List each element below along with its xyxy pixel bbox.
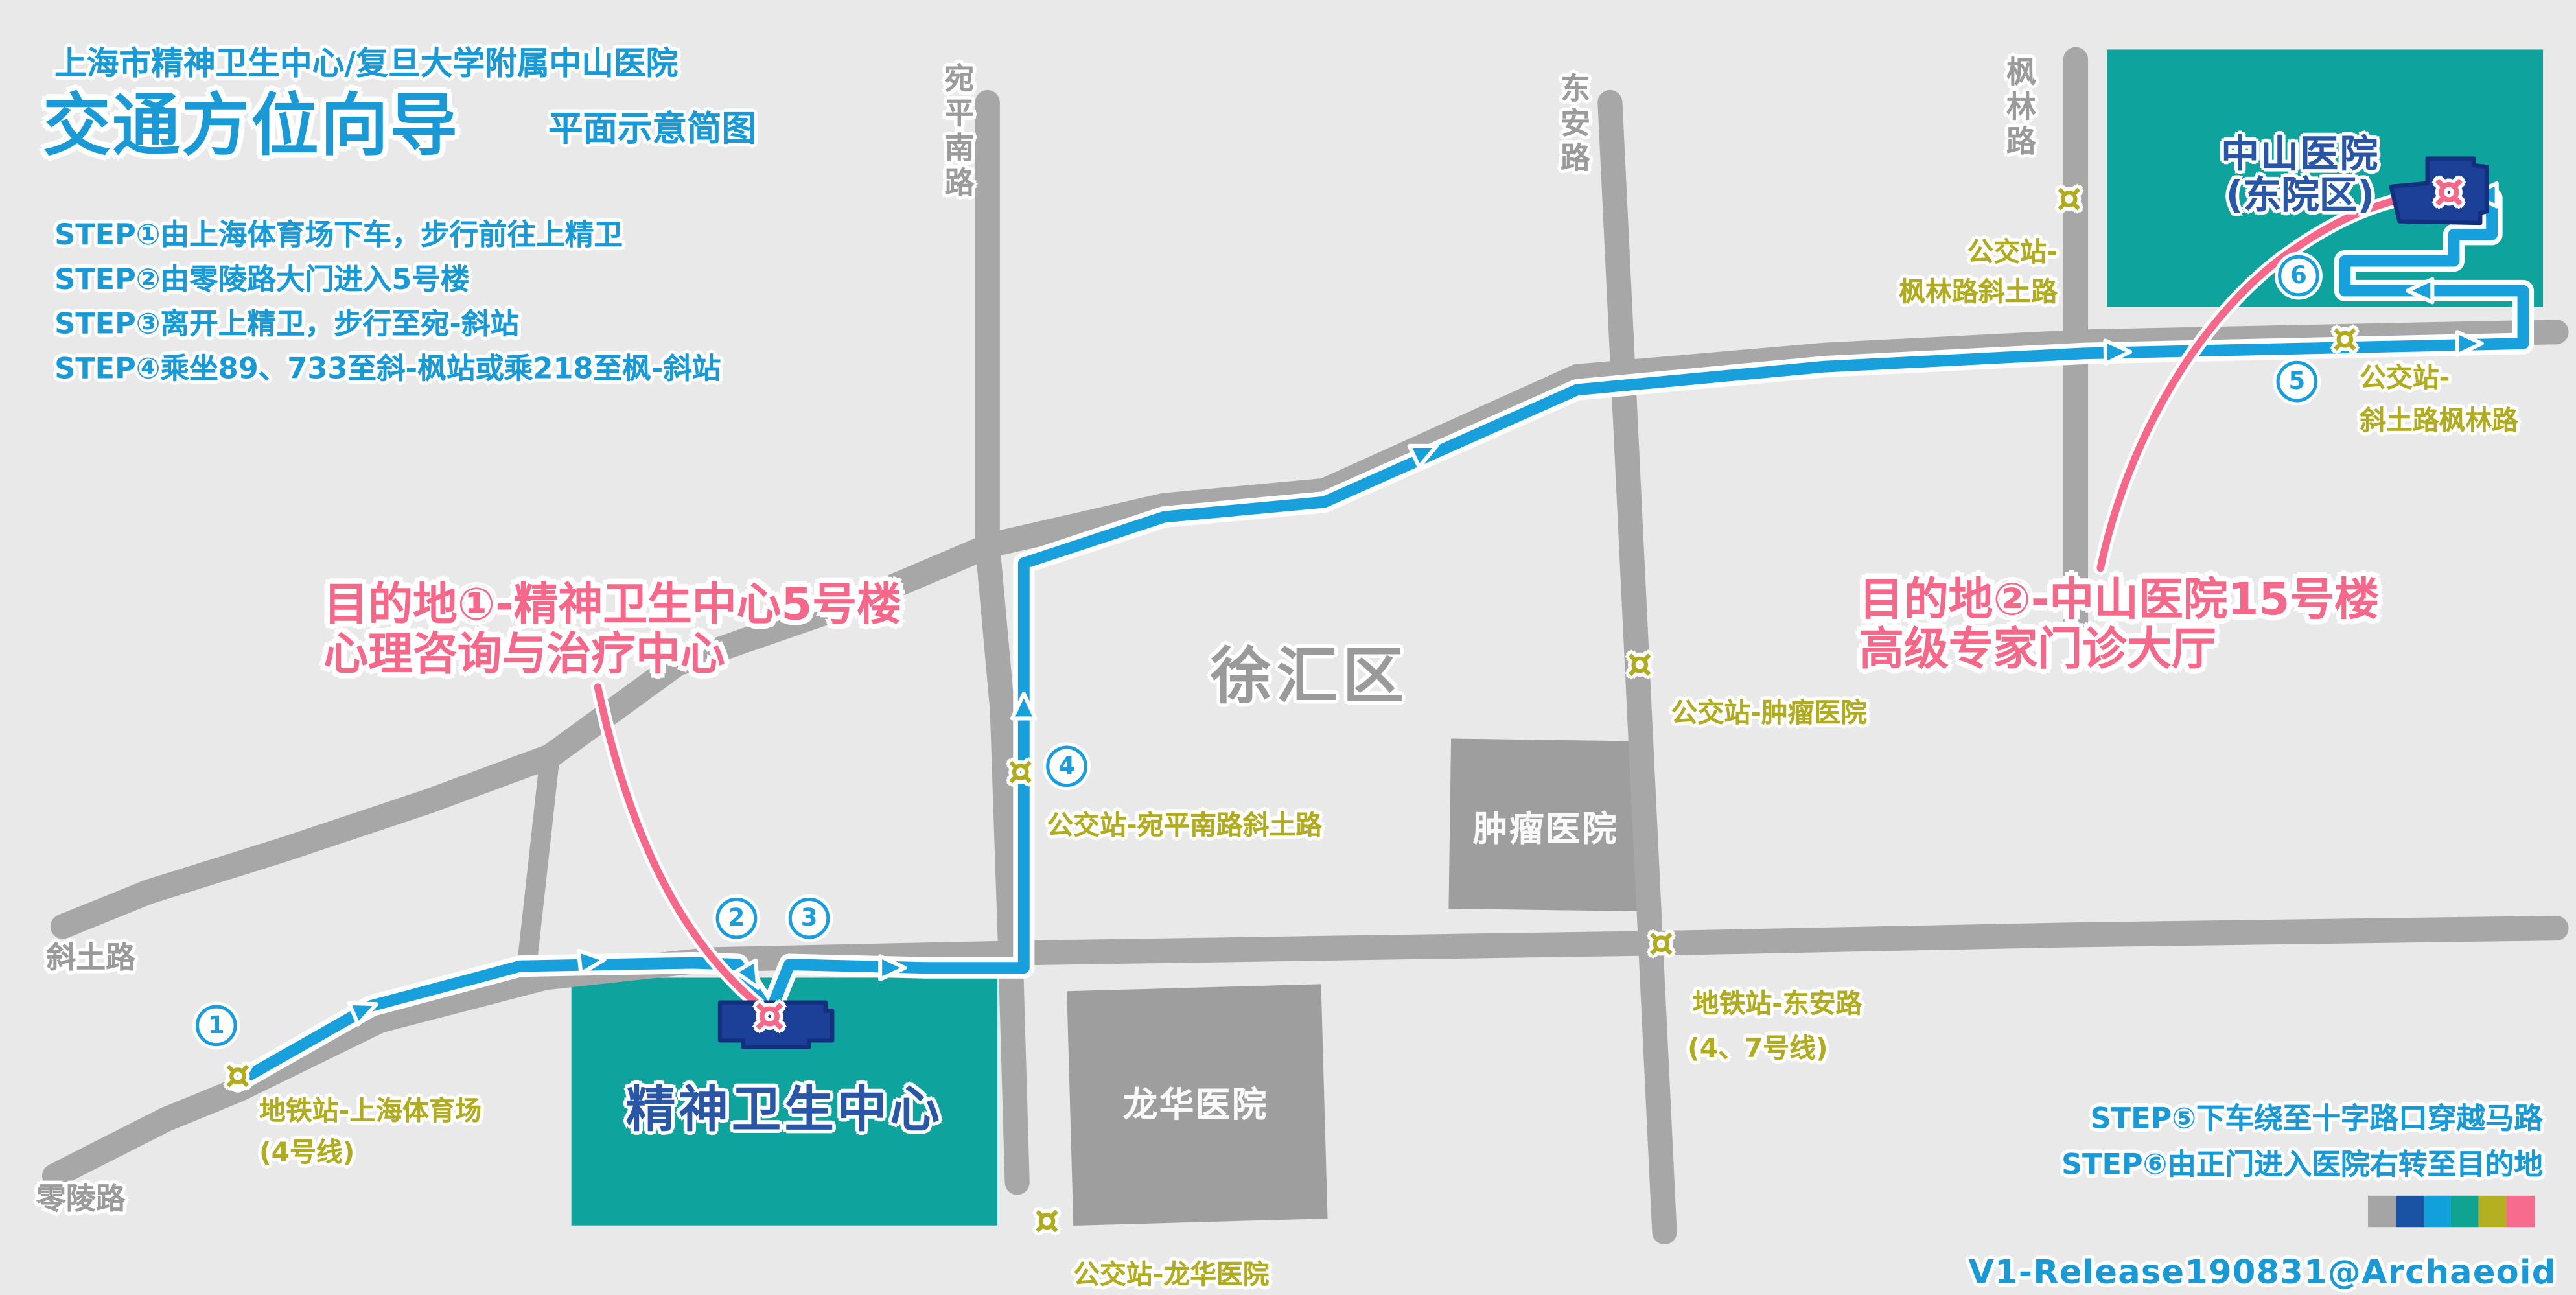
road-label-fenglin: 枫林路	[1997, 56, 2039, 161]
color-legend	[2368, 1196, 2535, 1227]
entrance-no15-icon: ¤	[2433, 167, 2464, 215]
metro-stadium-label-line2: (4号线)	[259, 1130, 354, 1169]
metro-dongan-label-line2: (4、7号线)	[1688, 1025, 1828, 1065]
road-label-xietu: 斜土路	[46, 935, 135, 977]
building-label-zhongshan-line2: (东院区)	[2226, 163, 2374, 220]
version-credit: V1-Release190831@Archaeoid	[1968, 1252, 2556, 1291]
metro-dongan-label-line1: 地铁站-东安路	[1693, 981, 1862, 1021]
destination2-line2: 高级专家门诊大厅	[1859, 612, 2216, 677]
step-4: STEP④乘坐89、733至斜-枫站或乘218至枫-斜站	[54, 347, 721, 388]
bus-fenglin-xietu-label-line2: 枫林路斜土路	[1899, 269, 2058, 309]
route-badge-2: 2	[716, 898, 758, 939]
bus-longhua-label: 公交站-龙华医院	[1073, 1252, 1269, 1291]
step-2: STEP②由零陵路大门进入5号楼	[54, 258, 469, 299]
road-label-wanpingnan: 宛平南路	[934, 63, 977, 202]
bus-xietu-fenglin-icon: ¤	[2332, 319, 2358, 358]
page-title-sub: 平面示意简图	[548, 102, 756, 152]
legend-swatch-blue	[2424, 1196, 2452, 1227]
road-wanpingnan	[988, 102, 1017, 1182]
legend-swatch-teal	[2451, 1196, 2479, 1227]
metro-stadium-label-line1: 地铁站-上海体育场	[259, 1088, 482, 1128]
route-badge-4: 4	[1046, 745, 1087, 787]
route-badge-1: 1	[196, 1005, 237, 1047]
legend-swatch-olive	[2479, 1196, 2507, 1227]
destination1-line2: 心理咨询与治疗中心	[323, 618, 725, 682]
road-connector	[525, 756, 550, 981]
metro-dongan-icon: ¤	[1649, 923, 1674, 962]
bus-wanping-xietu-icon: ¤	[1008, 751, 1033, 791]
route-badge-6: 6	[2278, 255, 2319, 297]
bus-wanping-xietu-label: 公交站-宛平南路斜土路	[1047, 802, 1322, 842]
bus-fenglin-xietu-label-line1: 公交站-	[1967, 229, 2058, 269]
legend-swatch-navy	[2396, 1196, 2424, 1227]
gate-no5-icon: ¤	[754, 992, 785, 1040]
bus-fenglin-xietu-icon: ¤	[2056, 178, 2082, 218]
legend-swatch-pink	[2507, 1196, 2535, 1227]
bus-zhongliu-label: 公交站-肿瘤医院	[1671, 690, 1867, 730]
route-badge-3: 3	[789, 898, 830, 939]
step-5: STEP⑤下车绕至十字路口穿越马路	[2091, 1097, 2544, 1138]
metro-stadium-icon: ¤	[225, 1055, 250, 1095]
bus-xietu-fenglin-label-line1: 公交站-	[2360, 355, 2450, 395]
road-label-dongan: 东安路	[1551, 73, 1594, 177]
legend-swatch-gray	[2368, 1196, 2396, 1227]
building-label-cancer-hospital: 肿瘤医院	[1473, 802, 1618, 852]
building-label-mental-health-center: 精神卫生中心	[626, 1069, 943, 1141]
bus-longhua-icon: ¤	[1034, 1201, 1060, 1241]
step-6: STEP⑥由正门进入医院右转至目的地	[2061, 1143, 2543, 1184]
transit-guide-map: 上海市精神卫生中心/复旦大学附属中山医院 交通方位向导 平面示意简图 STEP①…	[0, 0, 2576, 1295]
road-lingling	[54, 928, 2556, 1176]
route-badge-5: 5	[2277, 361, 2318, 402]
step-3: STEP③离开上精卫，步行至宛-斜站	[54, 302, 519, 344]
bus-zhongliu-icon: ¤	[1627, 644, 1653, 684]
building-label-longhua-hospital: 龙华医院	[1123, 1079, 1268, 1128]
road-label-lingling: 零陵路	[36, 1176, 126, 1219]
bus-xietu-fenglin-label-line2: 斜土路枫林路	[2360, 398, 2518, 437]
step-1: STEP①由上海体育场下车，步行前往上精卫	[54, 213, 623, 255]
district-label: 徐汇区	[1211, 626, 1409, 716]
page-title-main: 交通方位向导	[43, 69, 459, 169]
